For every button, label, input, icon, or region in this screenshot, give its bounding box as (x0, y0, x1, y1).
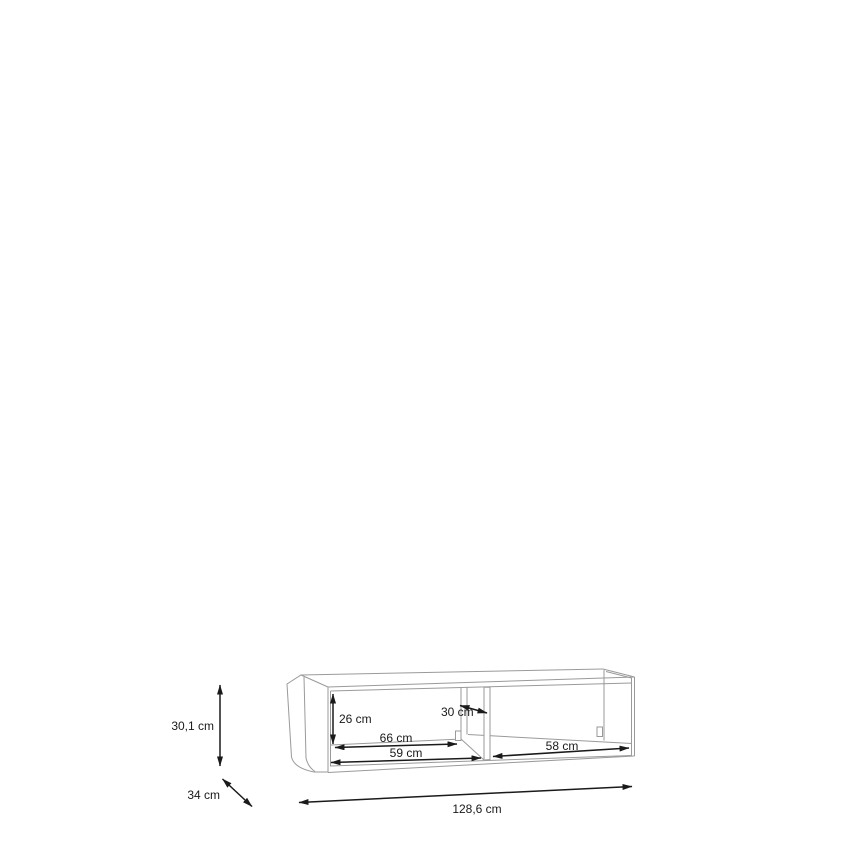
opening-top-edge (331, 683, 632, 691)
back-top-edge (301, 669, 603, 675)
dimension-inner-height-label: 26 cm (339, 712, 372, 726)
dimension-inner-depth-label: 30 cm (441, 705, 474, 719)
dimension-total-width-arrow (299, 787, 632, 803)
dimension-height-label: 30,1 cm (171, 719, 214, 733)
dimension-left-back-width-label: 66 cm (380, 731, 413, 745)
dimension-depth-label: 34 cm (187, 788, 220, 802)
drawing-canvas: 30,1 cm 34 cm 26 cm 66 cm 59 cm 30 cm 58… (0, 0, 868, 868)
top-right-receding-edge (603, 669, 635, 677)
front-top-edge (328, 677, 635, 687)
dimension-total-width-label: 128,6 cm (452, 802, 501, 816)
divider-bottom-edge (461, 739, 484, 760)
left-mounting-notch (456, 731, 462, 741)
divider-front-face (484, 687, 490, 760)
dimension-right-width-label: 58 cm (546, 739, 579, 753)
furniture-dimension-diagram: 30,1 cm 34 cm 26 cm 66 cm 59 cm 30 cm 58… (0, 0, 868, 868)
dimension-left-front-width-label: 59 cm (390, 746, 423, 760)
left-side-panel (287, 675, 328, 772)
dimension-depth-arrow (223, 779, 253, 807)
dimensions: 30,1 cm 34 cm 26 cm 66 cm 59 cm 30 cm 58… (171, 685, 632, 816)
right-mounting-notch (597, 727, 603, 737)
